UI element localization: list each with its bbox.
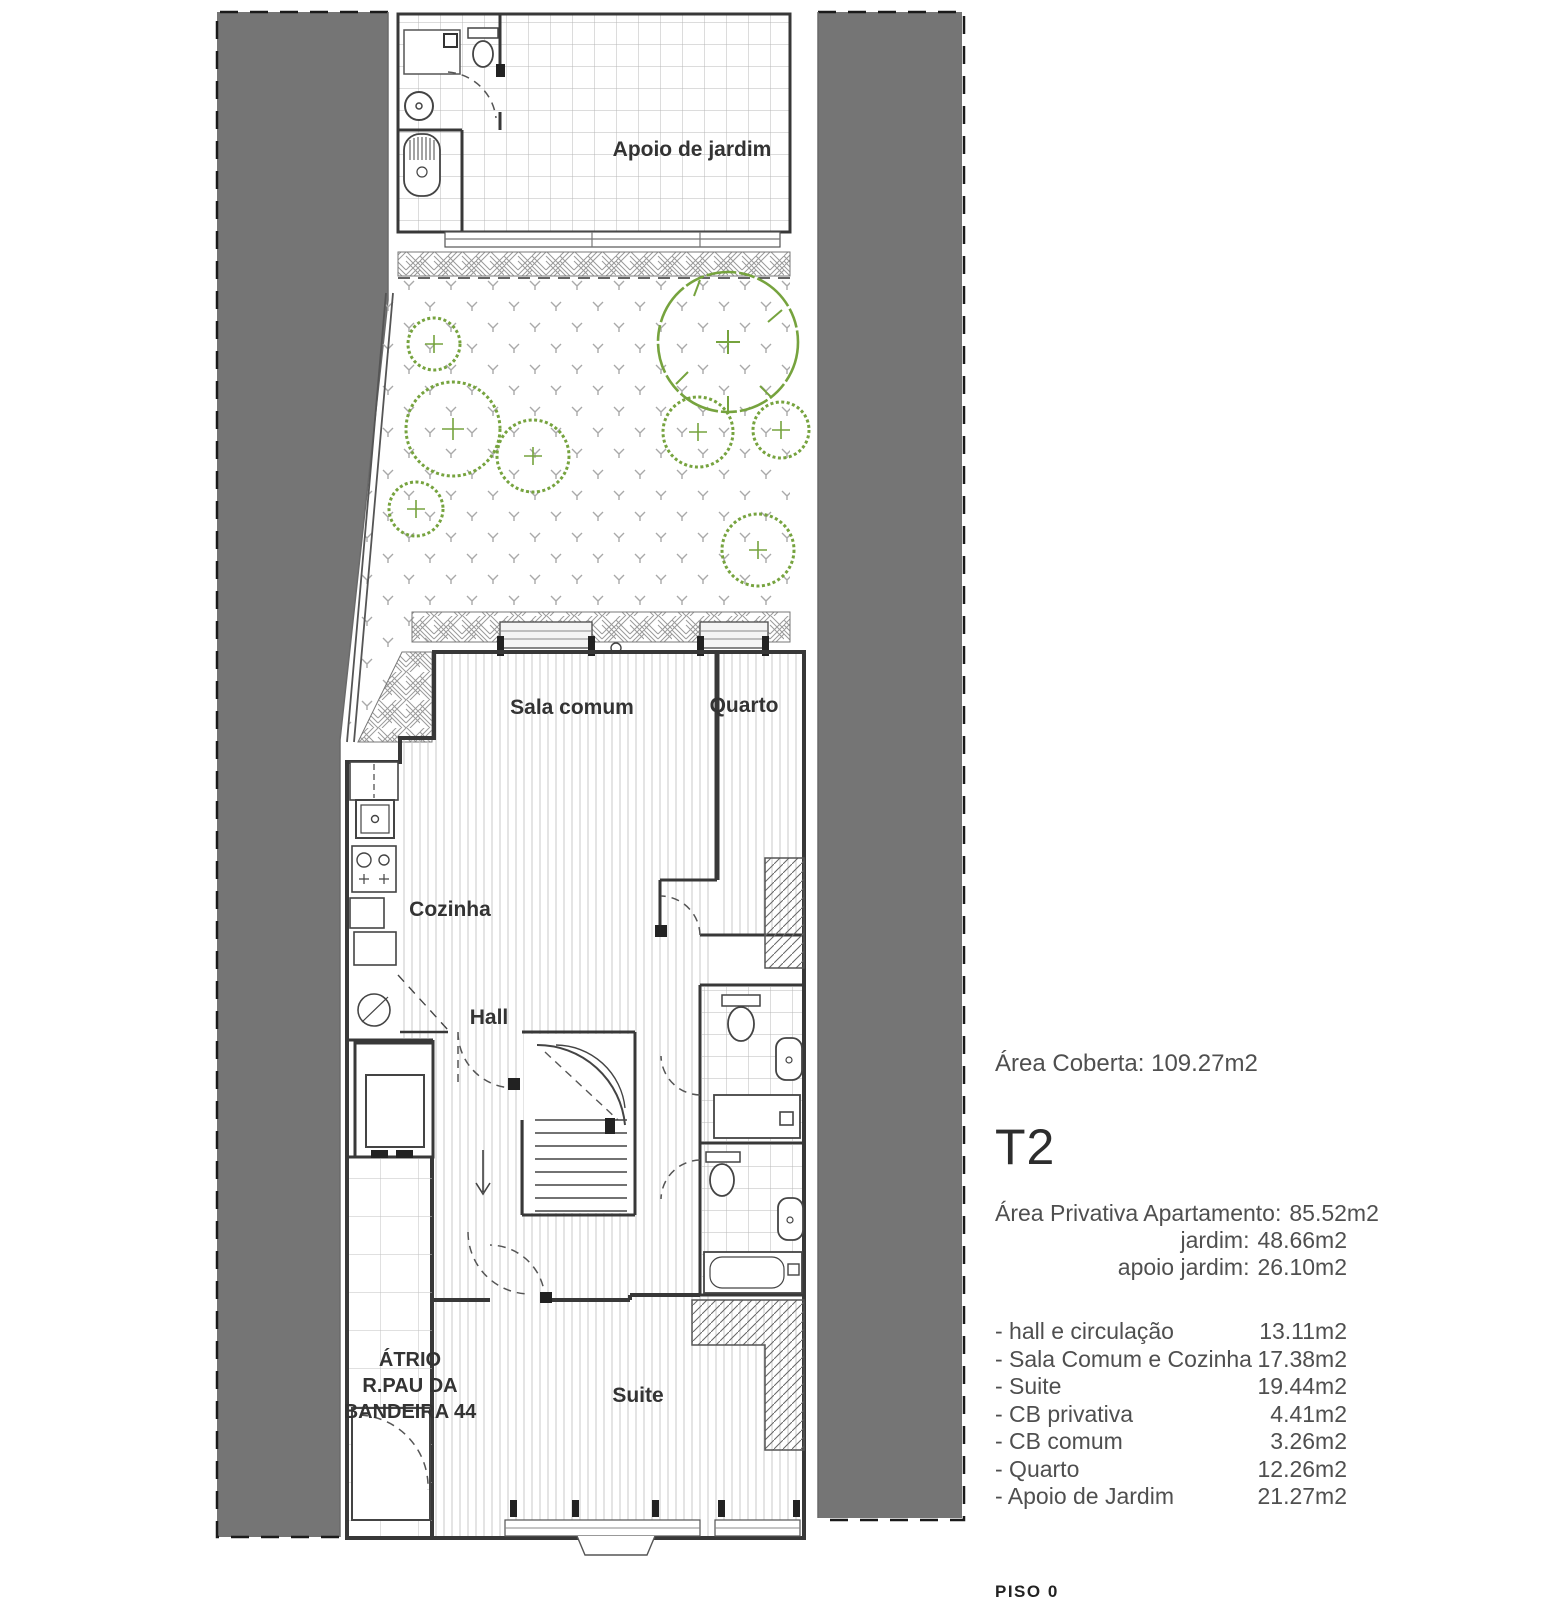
floor-label: PISO 0 <box>995 1582 1059 1602</box>
floorplan-sheet: Apoio de jardim <box>0 0 1556 1609</box>
room-area-row: - Sala Comum e Cozinha17.38m2 <box>995 1346 1347 1374</box>
room-areas-table: - hall e circulação13.11m2 - Sala Comum … <box>995 1318 1347 1511</box>
room-area-row: - CB privativa4.41m2 <box>995 1401 1347 1429</box>
room-area-row: - CB comum3.26m2 <box>995 1428 1347 1456</box>
private-area-value: 26.10m2 <box>1257 1254 1347 1280</box>
room-label-quarto: Quarto <box>710 694 779 717</box>
room-area-label: - Sala Comum e Cozinha <box>995 1346 1252 1374</box>
room-label-suite: Suite <box>612 1384 663 1407</box>
room-area-value: 12.26m2 <box>1257 1456 1347 1484</box>
room-area-value: 21.27m2 <box>1257 1483 1347 1511</box>
door-jamb <box>540 1292 552 1303</box>
room-area-label: - Quarto <box>995 1456 1079 1484</box>
area-coberta-line: Área Coberta: 109.27m2 <box>995 1050 1258 1078</box>
private-area-value: 85.52m2 <box>1289 1200 1379 1226</box>
shower-icon <box>714 1095 800 1138</box>
sink-icon <box>776 1038 802 1080</box>
atrio-line-1: ÁTRIO <box>379 1348 441 1371</box>
room-label-apoio: Apoio de jardim <box>613 138 772 161</box>
private-area-label: Área Privativa Apartamento: <box>995 1200 1281 1226</box>
apoio-de-jardim-building: Apoio de jardim <box>398 14 790 247</box>
room-label-hall: Hall <box>470 1006 509 1029</box>
wc-basin-icon <box>358 994 390 1026</box>
door-jamb <box>508 1078 520 1090</box>
bathtub-icon <box>404 134 440 196</box>
room-area-row: - Apoio de Jardim21.27m2 <box>995 1483 1347 1511</box>
atrio <box>349 1159 432 1536</box>
closet-quarto <box>765 858 804 968</box>
shower-head-icon <box>444 34 457 47</box>
door-jamb <box>496 64 505 77</box>
stove-icon <box>352 846 396 892</box>
room-label-cozinha: Cozinha <box>409 898 491 921</box>
bay-window <box>577 1536 655 1555</box>
room-area-label: - CB privativa <box>995 1401 1133 1429</box>
kitchen-sink-icon <box>356 800 394 838</box>
door-jamb <box>655 925 667 937</box>
room-area-row: - Suite19.44m2 <box>995 1373 1347 1401</box>
apoio-windows <box>445 232 780 247</box>
room-area-value: 19.44m2 <box>1257 1373 1347 1401</box>
room-area-value: 4.41m2 <box>1270 1401 1347 1429</box>
private-area-row: Área Privativa Apartamento:85.52m2 <box>995 1200 1347 1227</box>
private-area-label: jardim: <box>1180 1227 1249 1253</box>
area-coberta-value: 109.27m2 <box>1151 1050 1258 1077</box>
atrio-line-3: BANDEIRA 44 <box>344 1401 477 1423</box>
unit-type: T2 <box>995 1118 1055 1176</box>
room-area-label: - CB comum <box>995 1428 1123 1456</box>
private-area-row: jardim:48.66m2 <box>995 1227 1347 1254</box>
private-area-row: apoio jardim:26.10m2 <box>995 1254 1347 1281</box>
room-area-value: 3.26m2 <box>1270 1428 1347 1456</box>
area-coberta-label: Área Coberta: <box>995 1050 1144 1077</box>
private-areas-block: Área Privativa Apartamento:85.52m2 jardi… <box>995 1200 1347 1281</box>
atrio-line-2: R.PAU DA <box>362 1375 457 1397</box>
room-area-value: 17.38m2 <box>1257 1346 1347 1374</box>
room-area-label: - Apoio de Jardim <box>995 1483 1174 1511</box>
elevator <box>355 1043 433 1158</box>
room-label-sala: Sala comum <box>510 696 634 719</box>
room-area-label: - Suite <box>995 1373 1061 1401</box>
sink-icon <box>778 1198 803 1240</box>
washing-machine-icon <box>405 92 433 120</box>
neighbor-building-right <box>818 12 964 1520</box>
room-area-label: - hall e circulação <box>995 1318 1174 1346</box>
bathtub-icon <box>704 1252 802 1293</box>
private-area-label: apoio jardim: <box>1118 1254 1250 1280</box>
room-area-row: - hall e circulação13.11m2 <box>995 1318 1347 1346</box>
room-area-row: - Quarto12.26m2 <box>995 1456 1347 1484</box>
private-area-value: 48.66m2 <box>1257 1227 1347 1253</box>
room-area-value: 13.11m2 <box>1259 1318 1347 1346</box>
